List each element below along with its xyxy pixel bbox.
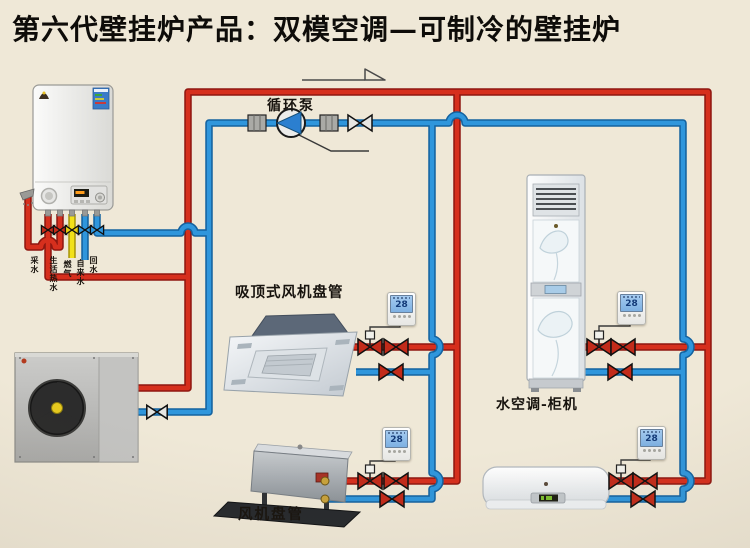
- shutoff-valve: [611, 339, 635, 355]
- shutoff-valve: [380, 491, 404, 507]
- thermostat-buttons: [618, 314, 645, 317]
- shutoff-valve: [379, 364, 403, 380]
- piping-diagram: [0, 0, 750, 548]
- ceiling-cassette-unit: [224, 314, 357, 396]
- shutoff-valve: [633, 473, 657, 489]
- boiler-port-nipples: [46, 210, 100, 216]
- diagram-canvas: 第六代壁挂炉产品：双模空调—可制冷的壁挂炉 循环泵 吸顶式风机盘管 水空调-柜机…: [0, 0, 750, 548]
- label-floor-unit: 水空调-柜机: [496, 394, 578, 414]
- boiler-sight-glass: [42, 189, 57, 204]
- flow-arrow-icon: [302, 69, 385, 80]
- boiler-port-label-tap-water: 自来水: [77, 259, 85, 286]
- circulation-pump-assembly: [248, 109, 372, 151]
- heat-pump-logo: [22, 359, 27, 364]
- label-fan-coil: 风机盘管: [238, 503, 304, 524]
- thermostat-screen: 28: [390, 295, 413, 313]
- wall-unit-logo: [544, 482, 548, 486]
- thermostat-buttons: [638, 449, 665, 452]
- thermostat-buttons: [388, 315, 415, 318]
- boiler-control-panel: [71, 186, 107, 204]
- boiler-port-label-dhw: 生活热水: [50, 256, 58, 292]
- shutoff-valve: [631, 491, 655, 507]
- thermostat-temperature: 28: [391, 300, 412, 310]
- heat-pump-valve: [147, 405, 167, 419]
- thermostat: 28: [617, 291, 646, 325]
- wall-hung-boiler: [33, 85, 113, 216]
- boiler-port-label-return: 回水: [90, 256, 98, 274]
- boiler-port-label-gas: 燃气: [64, 260, 72, 278]
- floor-unit-logo: [554, 224, 558, 228]
- thermostat-buttons: [383, 450, 410, 453]
- flange-fitting: [248, 115, 266, 131]
- thermostat-temperature: 28: [621, 299, 642, 309]
- floor-standing-ac-unit: [527, 175, 585, 392]
- thermostat: 28: [637, 426, 666, 460]
- thermostat: 28: [382, 427, 411, 461]
- label-ceiling-cassette: 吸顶式风机盘管: [235, 281, 344, 302]
- label-circulation-pump: 循环泵: [267, 95, 315, 115]
- boiler-port-label-heating-supply: 采水: [31, 256, 39, 274]
- shutoff-valve: [384, 339, 408, 355]
- flange-fitting: [320, 115, 338, 131]
- shutoff-valve: [384, 473, 408, 489]
- valve: [348, 115, 372, 131]
- heat-pump-outdoor-unit: [15, 353, 138, 462]
- pump-support: [299, 135, 369, 151]
- energy-label: [93, 88, 109, 109]
- thermostat-screen: 28: [640, 429, 663, 447]
- thermostat-screen: 28: [385, 430, 408, 448]
- thermostat-temperature: 28: [641, 434, 662, 444]
- thermostat-temperature: 28: [386, 435, 407, 445]
- wall-mounted-ac-unit: [483, 467, 609, 509]
- thermostat: 28: [387, 292, 416, 326]
- shutoff-valve: [608, 364, 632, 380]
- page-title: 第六代壁挂炉产品：双模空调—可制冷的壁挂炉: [12, 8, 621, 48]
- thermostat-screen: 28: [620, 294, 643, 312]
